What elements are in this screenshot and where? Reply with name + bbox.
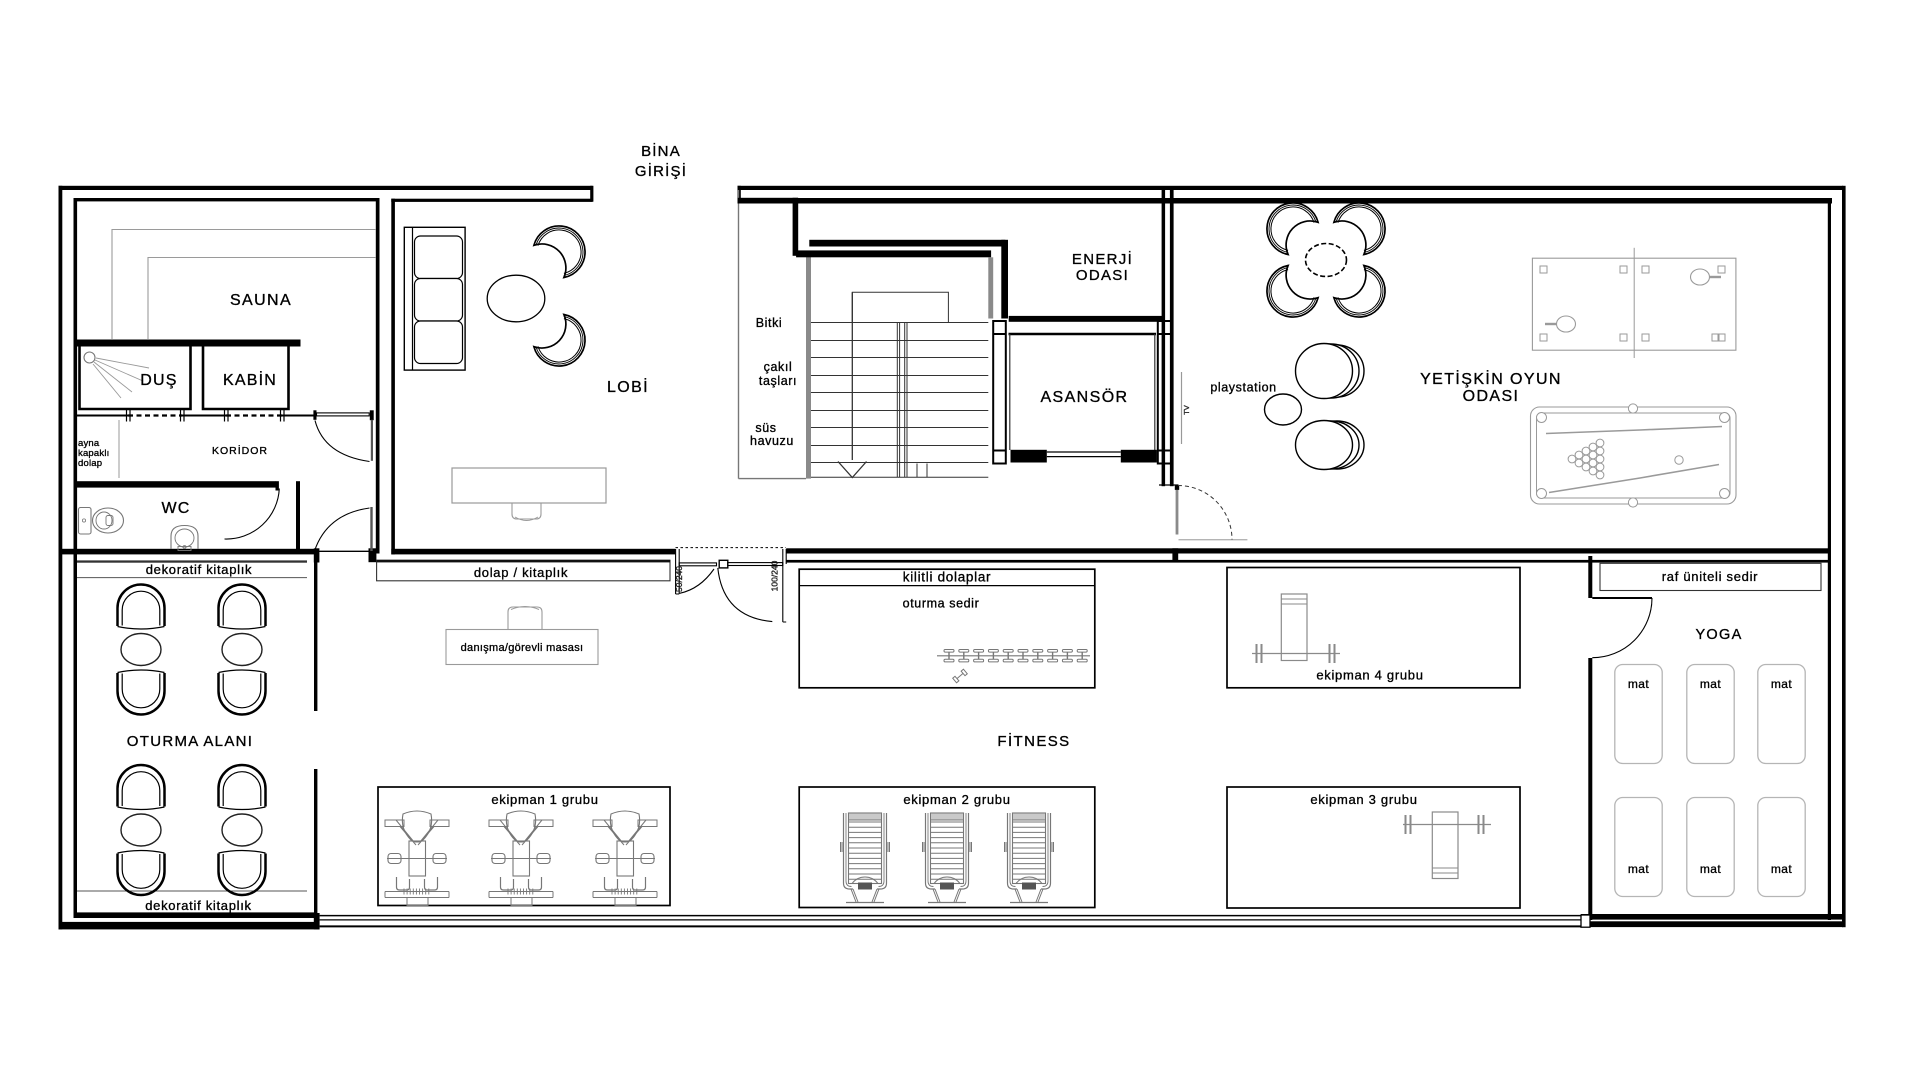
svg-text:çakıl: çakıl bbox=[764, 360, 793, 374]
svg-text:dolap: dolap bbox=[78, 458, 102, 469]
svg-text:mat: mat bbox=[1628, 677, 1649, 691]
svg-text:KORİDOR: KORİDOR bbox=[212, 444, 268, 457]
svg-text:ODASI: ODASI bbox=[1463, 388, 1520, 405]
svg-text:ekipman 2 grubu: ekipman 2 grubu bbox=[903, 792, 1010, 807]
svg-text:FİTNESS: FİTNESS bbox=[997, 732, 1070, 750]
svg-text:BİNA: BİNA bbox=[641, 142, 681, 160]
svg-text:taşları: taşları bbox=[759, 374, 797, 388]
svg-text:100/240: 100/240 bbox=[770, 560, 780, 591]
svg-text:DUŞ: DUŞ bbox=[140, 372, 177, 389]
svg-text:mat: mat bbox=[1628, 862, 1649, 876]
svg-text:oturma sedir: oturma sedir bbox=[903, 597, 980, 611]
svg-text:OTURMA ALANI: OTURMA ALANI bbox=[127, 733, 253, 750]
svg-text:YETİŞKİN OYUN: YETİŞKİN OYUN bbox=[1420, 369, 1562, 388]
svg-text:dekoratif kitaplık: dekoratif kitaplık bbox=[146, 562, 253, 577]
svg-text:raf üniteli sedir: raf üniteli sedir bbox=[1662, 569, 1758, 584]
svg-text:ekipman 3 grubu: ekipman 3 grubu bbox=[1310, 792, 1417, 807]
svg-text:ekipman 4 grubu: ekipman 4 grubu bbox=[1316, 668, 1423, 683]
svg-text:danışma/görevli masası: danışma/görevli masası bbox=[461, 642, 584, 654]
svg-text:YOGA: YOGA bbox=[1695, 627, 1742, 643]
svg-text:50/240: 50/240 bbox=[674, 566, 684, 592]
svg-text:ENERJİ: ENERJİ bbox=[1072, 250, 1133, 268]
svg-text:playstation: playstation bbox=[1210, 381, 1276, 395]
svg-text:GİRİŞİ: GİRİŞİ bbox=[635, 162, 687, 180]
svg-text:ekipman 1 grubu: ekipman 1 grubu bbox=[491, 792, 598, 807]
svg-text:süs: süs bbox=[755, 421, 776, 435]
svg-text:mat: mat bbox=[1771, 677, 1792, 691]
svg-text:TV: TV bbox=[1182, 405, 1191, 415]
svg-text:havuzu: havuzu bbox=[750, 434, 794, 448]
svg-text:Bitki: Bitki bbox=[756, 316, 783, 330]
svg-text:KABİN: KABİN bbox=[223, 370, 277, 389]
svg-text:kilitli dolaplar: kilitli dolaplar bbox=[903, 570, 991, 585]
svg-text:mat: mat bbox=[1771, 862, 1792, 876]
svg-text:LOBİ: LOBİ bbox=[607, 377, 649, 396]
svg-text:mat: mat bbox=[1700, 677, 1721, 691]
svg-text:ODASI: ODASI bbox=[1076, 267, 1129, 284]
svg-text:SAUNA: SAUNA bbox=[230, 292, 292, 309]
svg-text:dolap / kitaplık: dolap / kitaplık bbox=[474, 565, 568, 580]
svg-text:ASANSÖR: ASANSÖR bbox=[1040, 388, 1128, 406]
svg-text:dekoratif kitaplık: dekoratif kitaplık bbox=[145, 898, 252, 913]
svg-text:WC: WC bbox=[161, 500, 190, 517]
svg-text:mat: mat bbox=[1700, 862, 1721, 876]
